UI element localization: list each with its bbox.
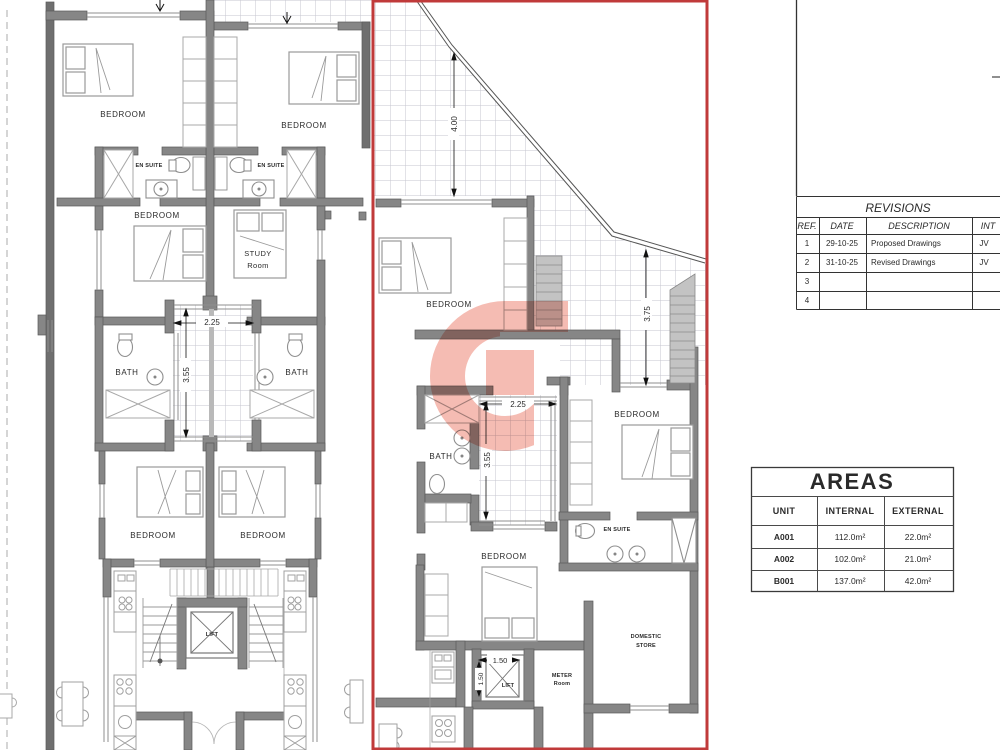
svg-text:3.75: 3.75 [643, 306, 652, 322]
svg-text:BEDROOM: BEDROOM [130, 531, 176, 540]
svg-text:JV: JV [979, 258, 989, 267]
svg-text:112.0m²: 112.0m² [835, 532, 866, 542]
svg-text:A001: A001 [774, 532, 795, 542]
svg-text:29-10-25: 29-10-25 [826, 239, 859, 248]
svg-text:2: 2 [805, 258, 810, 267]
svg-text:BEDROOM: BEDROOM [426, 300, 472, 309]
svg-text:1.50: 1.50 [478, 672, 485, 685]
svg-text:BEDROOM: BEDROOM [614, 410, 660, 419]
svg-text:DATE: DATE [830, 221, 854, 231]
svg-text:BEDROOM: BEDROOM [100, 110, 146, 119]
svg-text:BATH: BATH [429, 452, 452, 461]
svg-text:REVISIONS: REVISIONS [865, 201, 930, 215]
svg-text:EN SUITE: EN SUITE [136, 163, 163, 169]
svg-text:LIFT: LIFT [502, 683, 515, 689]
svg-text:3: 3 [805, 277, 810, 286]
svg-text:EN SUITE: EN SUITE [604, 527, 631, 533]
svg-text:EN SUITE: EN SUITE [258, 163, 285, 169]
svg-text:137.0m²: 137.0m² [834, 576, 865, 586]
svg-text:DOMESTIC: DOMESTIC [631, 634, 662, 640]
svg-text:BEDROOM: BEDROOM [481, 552, 527, 561]
svg-text:2.25: 2.25 [510, 400, 526, 409]
svg-text:STUDY: STUDY [244, 249, 271, 258]
svg-text:31-10-25: 31-10-25 [826, 258, 859, 267]
svg-text:BATH: BATH [285, 368, 308, 377]
svg-text:22.0m²: 22.0m² [905, 532, 932, 542]
svg-text:STORE: STORE [636, 643, 656, 649]
svg-text:JV: JV [979, 239, 989, 248]
svg-text:102.0m²: 102.0m² [834, 554, 865, 564]
svg-text:A002: A002 [774, 554, 795, 564]
svg-text:Room: Room [554, 681, 570, 687]
svg-text:DESCRIPTION: DESCRIPTION [888, 221, 950, 231]
svg-text:4.00: 4.00 [450, 116, 459, 132]
svg-text:4: 4 [805, 296, 810, 305]
svg-text:METER: METER [552, 673, 572, 679]
svg-text:EXTERNAL: EXTERNAL [892, 506, 944, 516]
svg-text:3.55: 3.55 [483, 452, 492, 468]
svg-text:1: 1 [805, 239, 810, 248]
svg-text:UNIT: UNIT [773, 506, 796, 516]
svg-text:BEDROOM: BEDROOM [134, 211, 180, 220]
svg-text:BEDROOM: BEDROOM [281, 121, 327, 130]
svg-text:1.50: 1.50 [493, 656, 508, 665]
svg-text:21.0m²: 21.0m² [905, 554, 932, 564]
svg-text:AREAS: AREAS [810, 469, 895, 494]
svg-text:B001: B001 [774, 576, 795, 586]
svg-text:Room: Room [247, 261, 269, 270]
svg-text:Revised Drawings: Revised Drawings [871, 258, 935, 267]
svg-text:INTERNAL: INTERNAL [826, 506, 875, 516]
svg-text:42.0m²: 42.0m² [905, 576, 932, 586]
svg-text:Proposed Drawings: Proposed Drawings [871, 239, 941, 248]
svg-text:3.55: 3.55 [182, 367, 191, 383]
svg-text:BEDROOM: BEDROOM [240, 531, 286, 540]
svg-text:REF.: REF. [797, 221, 816, 231]
svg-text:2.25: 2.25 [204, 318, 220, 327]
svg-text:BATH: BATH [115, 368, 138, 377]
svg-text:LIFT: LIFT [206, 632, 219, 638]
svg-text:INT: INT [981, 221, 997, 231]
